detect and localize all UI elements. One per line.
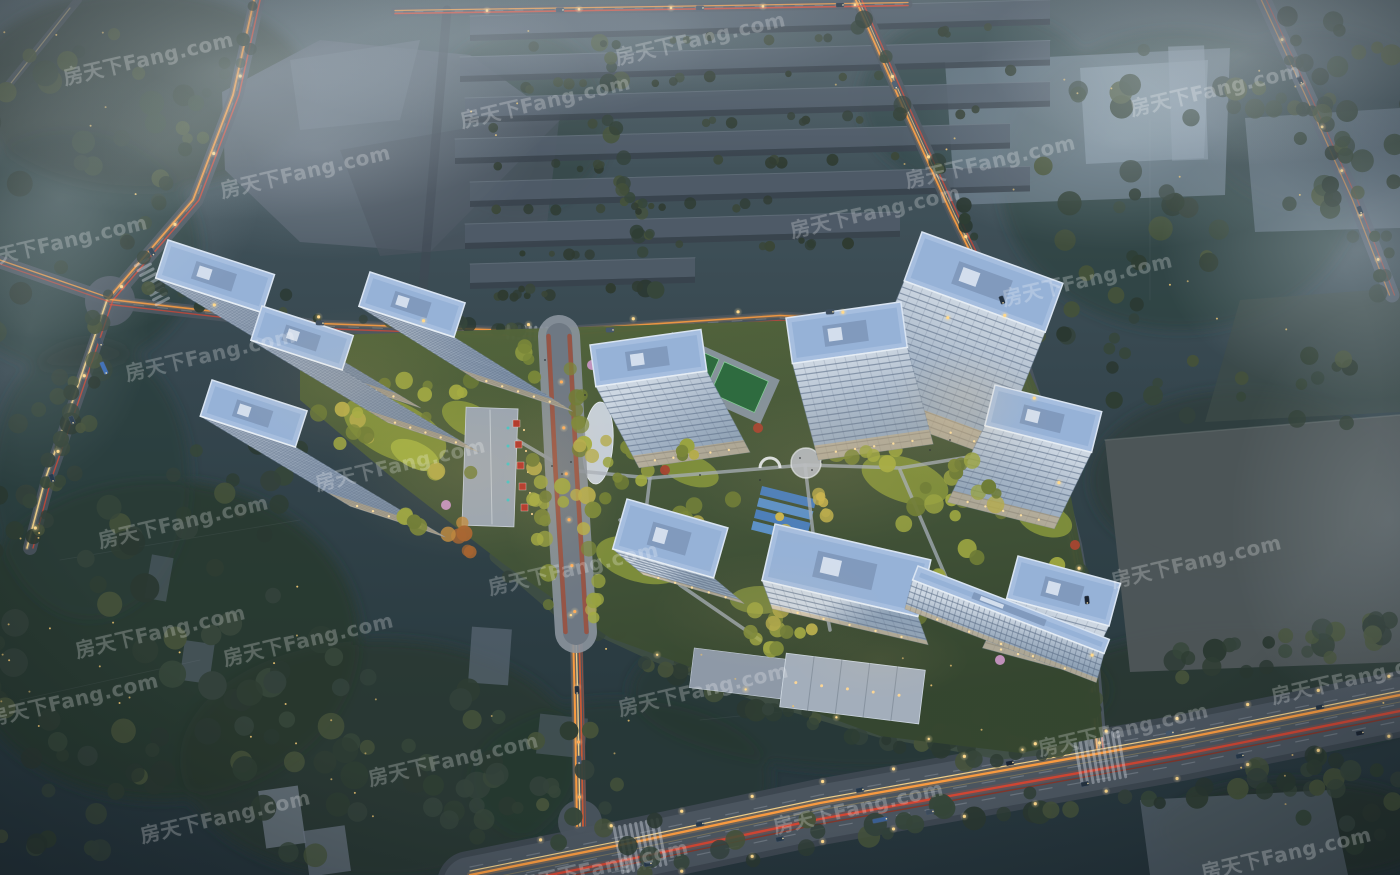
fog <box>0 0 1400 875</box>
rendering-scene <box>0 0 1400 875</box>
aerial-night-rendering: 房天下Fang.com房天下Fang.com房天下Fang.com房天下Fang… <box>0 0 1400 875</box>
vignette <box>0 0 1400 875</box>
